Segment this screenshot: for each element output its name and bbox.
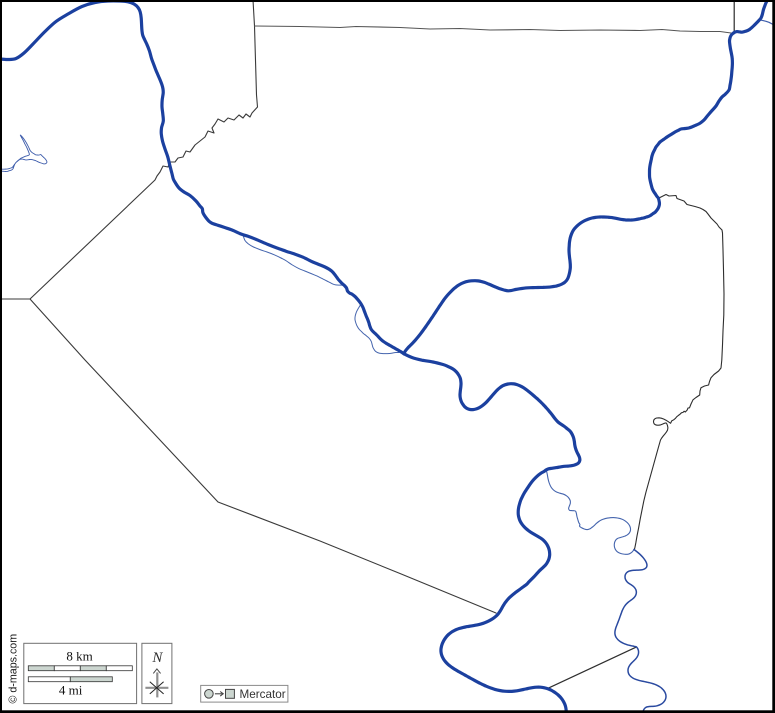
svg-text:N: N <box>151 650 163 666</box>
svg-text:4 mi: 4 mi <box>59 683 83 698</box>
svg-text:8 km: 8 km <box>66 649 92 664</box>
svg-text:© d-maps.com: © d-maps.com <box>8 634 20 704</box>
svg-text:Mercator: Mercator <box>240 688 286 701</box>
